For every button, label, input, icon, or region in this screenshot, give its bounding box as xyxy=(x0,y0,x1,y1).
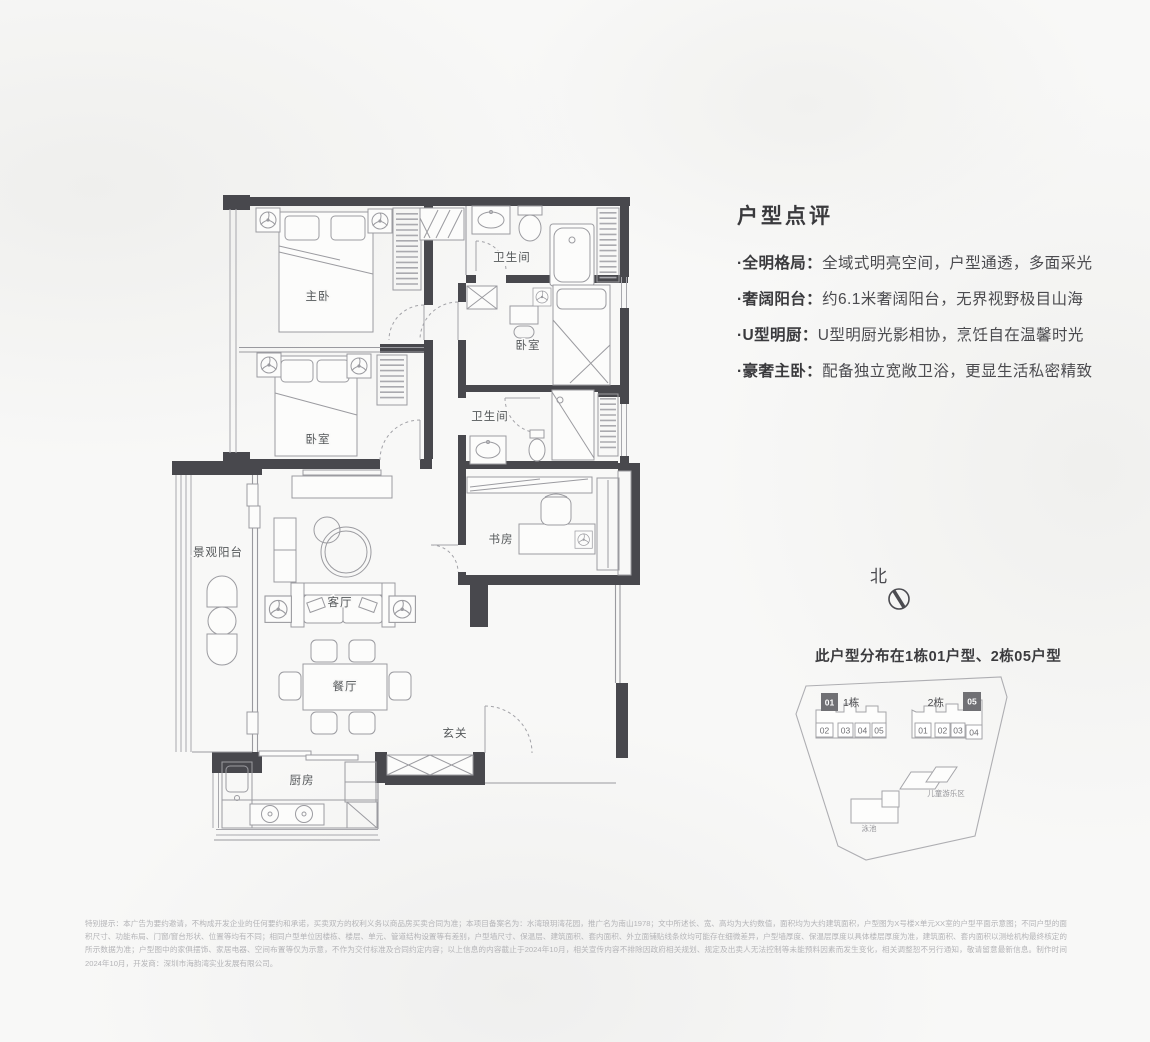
room-label-study: 书房 xyxy=(489,533,514,546)
unit-label: 04 xyxy=(969,728,979,738)
pool-label: 泳池 xyxy=(862,823,877,833)
bathroom1-fixtures xyxy=(472,206,619,286)
review-panel: 户型点评 ·全明格局：全域式明亮空间，户型通透，多面采光 ·奢阔阳台：约6.1米… xyxy=(737,200,1142,390)
ac-fan-icon xyxy=(347,354,371,378)
pool: 泳池 xyxy=(851,791,899,833)
room-label-foyer: 玄关 xyxy=(443,726,468,740)
review-title: 户型点评 xyxy=(737,200,1142,230)
building-name: 2栋 xyxy=(928,696,945,709)
unit-label: 03 xyxy=(953,726,963,736)
ac-fan-icon xyxy=(533,288,551,306)
unit-label: 05 xyxy=(874,726,884,736)
unit-label: 04 xyxy=(858,726,868,736)
room-label-bath1: 卫生间 xyxy=(493,250,531,264)
north-label: 北 xyxy=(870,562,888,587)
ac-fan-icon xyxy=(257,353,281,377)
review-point: ·U型明厨：U型明厨光影相协，烹饪自在温馨时光 xyxy=(737,318,1142,354)
ac-fan-icon xyxy=(368,209,392,233)
ac-fan-icon xyxy=(256,208,280,232)
unit-label: 02 xyxy=(938,726,948,736)
room-label-bedroom2: 卧室 xyxy=(516,338,541,352)
site-plan: 01 1栋 02 03 04 05 05 2栋 01 02 03 04 儿童游乐… xyxy=(783,666,1030,876)
master-bed xyxy=(279,212,373,332)
study-furniture xyxy=(467,471,631,575)
playground: 儿童游乐区 xyxy=(900,767,965,798)
site-plan-title: 此户型分布在1栋01户型、2栋05户型 xyxy=(815,645,1061,666)
room-label-bedroom3: 卧室 xyxy=(306,432,331,446)
ceiling-fan-icon xyxy=(575,531,592,548)
side-table-icon xyxy=(389,596,415,622)
hall-closet xyxy=(420,208,464,240)
unit-label: 02 xyxy=(820,726,830,736)
review-point: ·豪奢主卧：配备独立宽敞卫浴，更显生活私密精致 xyxy=(737,354,1142,390)
room-label-balcony: 景观阳台 xyxy=(193,545,243,559)
master-wardrobe xyxy=(393,208,421,290)
compass-icon xyxy=(886,586,912,612)
room-label-living: 客厅 xyxy=(328,595,353,609)
unit-label: 01 xyxy=(918,726,928,736)
building-name: 1栋 xyxy=(843,696,860,709)
bedroom3-furniture xyxy=(275,355,407,456)
room-label-bath2: 卫生间 xyxy=(471,409,509,423)
building-1: 01 1栋 02 03 04 05 xyxy=(816,693,886,738)
floor-plan: 主卧 卫生间 卧室 卧室 卫生间 书房 景观阳台 客厅 餐厅 玄关 厨房 xyxy=(150,190,660,860)
compass: 北 xyxy=(856,562,926,626)
unit-highlight: 05 xyxy=(967,697,977,707)
bathroom2-fixtures xyxy=(470,390,618,464)
review-point: ·奢阔阳台：约6.1米奢阔阳台，无界视野极目山海 xyxy=(737,282,1142,318)
room-label-kitchen: 厨房 xyxy=(290,774,315,787)
playground-label: 儿童游乐区 xyxy=(927,788,965,798)
side-table-icon xyxy=(265,596,291,622)
review-list: ·全明格局：全域式明亮空间，户型通透，多面采光 ·奢阔阳台：约6.1米奢阔阳台，… xyxy=(737,246,1142,390)
unit-label: 03 xyxy=(841,726,851,736)
shoe-cabinet xyxy=(387,755,473,775)
room-label-master: 主卧 xyxy=(306,290,331,303)
room-label-dining: 餐厅 xyxy=(333,679,358,693)
review-point: ·全明格局：全域式明亮空间，户型通透，多面采光 xyxy=(737,246,1142,282)
building-2: 05 2栋 01 02 03 04 xyxy=(912,692,982,739)
unit-highlight: 01 xyxy=(825,698,835,708)
disclaimer-text: 特别提示：本广告为要约邀请，不构成开发企业的任何要约和承诺，买卖双方的权利义务以… xyxy=(85,917,1067,970)
